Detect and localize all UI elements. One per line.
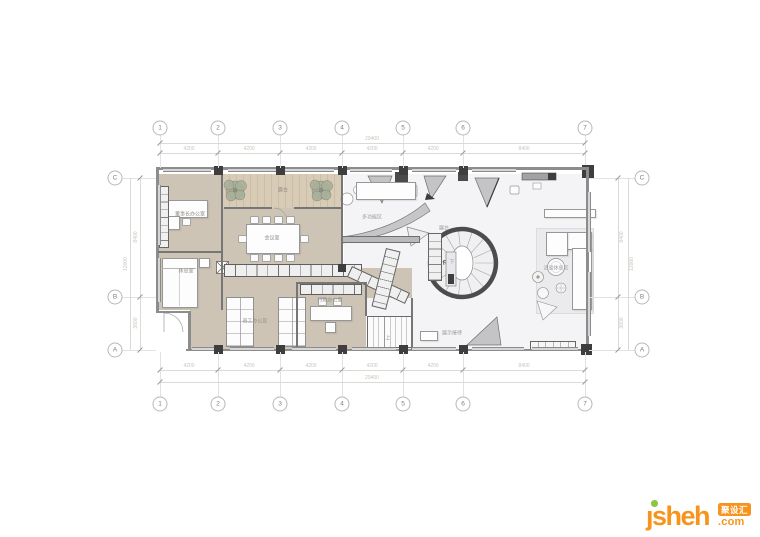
staff-worktable [278,297,306,347]
window [352,347,396,351]
room-label-reception: 展示接待 [442,330,462,337]
meeting-chair [262,216,271,224]
floor-mat [420,331,438,341]
stair-up-label: 上 [385,335,390,342]
window [587,272,591,336]
bed [162,258,198,308]
grid-bubble-top-5: 5 [396,121,411,136]
dim-text-total: 29400 [365,136,379,142]
meeting-chair [238,235,247,243]
display-plinth [533,183,541,189]
room-label-office: 董事长办公室 [175,211,205,218]
grid-bubble-bottom-4: 4 [335,397,350,412]
grid-bubble-top-7: 7 [578,121,593,136]
dim-text: 8400 [619,231,625,242]
grid-line [589,350,635,351]
window [532,347,578,351]
stair-entry-block [448,274,454,284]
column [338,264,346,272]
meeting-chair [262,254,271,262]
display-plinth [510,186,519,194]
dim-text: 4200 [305,363,316,369]
round-table [341,193,353,205]
office-chair [182,218,191,226]
dim-text-total: 12000 [629,257,635,271]
dim-text: 3600 [133,317,139,328]
window [292,347,336,351]
dim-text: 3600 [619,317,625,328]
sofa-chaise [546,232,568,256]
side-table [556,283,566,293]
grid-bubble-top-3: 3 [273,121,288,136]
window [192,347,214,351]
dim-text: 4200 [427,363,438,369]
dim-text: 4200 [243,146,254,152]
dim-line-left [140,178,141,350]
meeting-chair [274,216,283,224]
grid-bubble-top-2: 2 [211,121,226,136]
grid-bubble-left-A: A [108,343,123,358]
grid-bubble-top-1: 1 [153,121,168,136]
desk-return [168,216,180,230]
wall-left-step [156,311,190,313]
sill-block [548,173,556,180]
grid-bubble-bottom-6: 6 [456,397,471,412]
dim-line-bottom [160,370,585,371]
tree-icon [224,180,247,201]
wall-office-right [221,174,223,310]
low-display-bar [342,236,420,243]
plant [536,275,539,278]
wall-office-rest-divider [158,251,221,253]
wall-terrace-meeting [224,207,272,209]
bed-split-line [179,269,180,306]
wall-admin-left [296,282,298,350]
room-label-terrace: 露台 [278,187,288,194]
tree-icon [310,180,333,201]
window [412,347,456,351]
wall-left-lower [188,311,191,351]
wall-meeting-right [341,174,343,268]
wall-stair-right [411,298,413,350]
room-label-multiuse: 多功能区 [362,214,382,221]
wall-terrace-meeting [294,207,342,209]
dim-text: 4200 [243,363,254,369]
room-label-lounge: 洽谈休息区 [543,265,568,272]
grid-line [403,352,404,397]
room-label-staff: 员工办公区 [242,318,267,325]
grid-bubble-bottom-3: 3 [273,397,288,412]
window [587,192,591,252]
grid-bubble-left-C: C [108,171,123,186]
watermark-link[interactable]: ȷsheh 聚设汇 .com [644,499,758,535]
window [412,168,456,172]
stair-down-label: 下 [449,259,454,266]
wall-admin-top [296,282,366,284]
grid-bubble-left-B: B [108,290,123,305]
grid-line [280,352,281,397]
dim-line-top-total [160,143,585,144]
straight-staircase [367,316,413,348]
dim-text: 4200 [183,146,194,152]
dim-text-total: 12000 [123,257,129,271]
dim-text: 4200 [366,146,377,152]
dim-text: 8400 [133,231,139,242]
grid-bubble-right-C: C [635,171,650,186]
window [472,347,524,351]
grid-bubble-top-4: 4 [335,121,350,136]
stair-entry-steps [428,233,442,281]
lounge-wedge-chair [537,301,557,320]
grid-bubble-top-6: 6 [456,121,471,136]
dim-line-bottom-total [160,382,585,383]
grid-bubble-bottom-7: 7 [578,397,593,412]
window [163,168,211,172]
window [157,258,161,302]
grid-line [585,352,586,397]
grid-line [342,352,343,397]
dim-line-top [160,153,585,154]
room-label-meeting: 会议室 [264,235,279,242]
meeting-chair [274,254,283,262]
pouf [538,288,549,299]
window [230,347,274,351]
grid-bubble-right-B: B [635,290,650,305]
admin-desk [310,306,352,321]
wedge-fixture [475,178,499,207]
window [157,185,161,245]
watermark-badge: 聚设汇 [718,503,751,516]
entrance-wedge-fixture [467,317,501,345]
window [350,168,392,172]
meeting-chair [286,254,295,262]
bedside-table [199,258,210,268]
grid-line [160,352,161,397]
meeting-chair [250,254,259,262]
admin-side-unit [325,322,336,333]
wall-stair-left [365,282,367,316]
dim-text-total: 29400 [365,375,379,381]
grid-line [218,352,219,397]
dim-text: 8400 [518,363,529,369]
grid-line [463,352,464,397]
room-label-rest: 休息室 [178,268,193,275]
dim-line-left-total [130,178,131,350]
meeting-chair [300,235,309,243]
daybed-bench [356,182,416,200]
grid-bubble-right-A: A [635,343,650,358]
dim-text: 4200 [427,146,438,152]
dim-text: 4200 [183,363,194,369]
meeting-chair [286,216,295,224]
dim-text: 8400 [518,146,529,152]
watermark-tld: .com [718,516,744,528]
meeting-chair [250,216,259,224]
door-swing-arc [164,313,183,332]
watermark-green-dot-icon [651,500,658,507]
admin-cabinet-shelf [300,284,362,295]
dim-text: 4200 [305,146,316,152]
room-label-admin: 行政办公室 [317,297,342,304]
room-label-exhibit: 展台 [439,225,449,232]
grid-bubble-bottom-2: 2 [211,397,226,412]
window [472,168,516,172]
grid-bubble-bottom-5: 5 [396,397,411,412]
grid-bubble-bottom-1: 1 [153,397,168,412]
dim-text: 4200 [366,363,377,369]
